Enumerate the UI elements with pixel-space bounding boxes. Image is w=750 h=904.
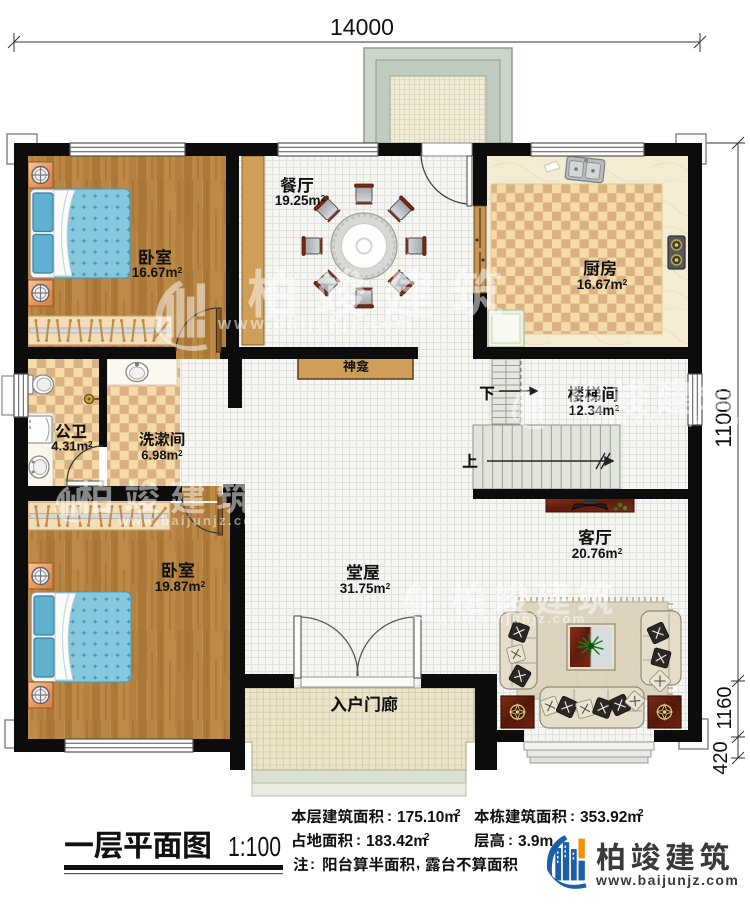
svg-text:www.baijunjz.com: www.baijunjz.com [217,314,414,333]
svg-text:6.98m2: 6.98m2 [141,448,183,463]
svg-text:,: , [416,855,420,872]
svg-text:3.9m: 3.9m [518,833,553,850]
svg-text:183.42m: 183.42m [366,833,427,850]
svg-text:2: 2 [638,808,644,819]
svg-text:www.baijunjz.com: www.baijunjz.com [118,513,268,528]
svg-text:420: 420 [710,741,732,774]
svg-text:1160: 1160 [714,686,736,729]
svg-text:14000: 14000 [330,14,394,40]
svg-text::: : [508,832,513,849]
svg-text:www.baijunjz.com: www.baijunjz.com [437,611,587,626]
svg-text:353.92m: 353.92m [580,809,641,826]
svg-text:1:100: 1:100 [228,831,281,862]
svg-text::: : [310,856,315,873]
svg-text:20.76m2: 20.76m2 [572,546,623,561]
svg-text:19.87m2: 19.87m2 [155,579,206,594]
svg-text:2: 2 [424,832,430,843]
svg-text:2: 2 [455,808,461,819]
svg-text:19.25m2: 19.25m2 [275,193,326,208]
svg-text:175.10m: 175.10m [397,809,458,826]
svg-text:www.baijunjz.com: www.baijunjz.com [590,412,746,427]
svg-text:31.75m2: 31.75m2 [340,581,391,596]
svg-text::: : [570,808,575,825]
svg-text::: : [356,832,361,849]
svg-text:16.67m2: 16.67m2 [132,265,183,280]
svg-text:www.baijunjz.com: www.baijunjz.com [595,872,739,888]
svg-text:16.67m2: 16.67m2 [577,277,628,292]
svg-text::: : [387,808,392,825]
svg-text:4.31m2: 4.31m2 [51,439,93,454]
